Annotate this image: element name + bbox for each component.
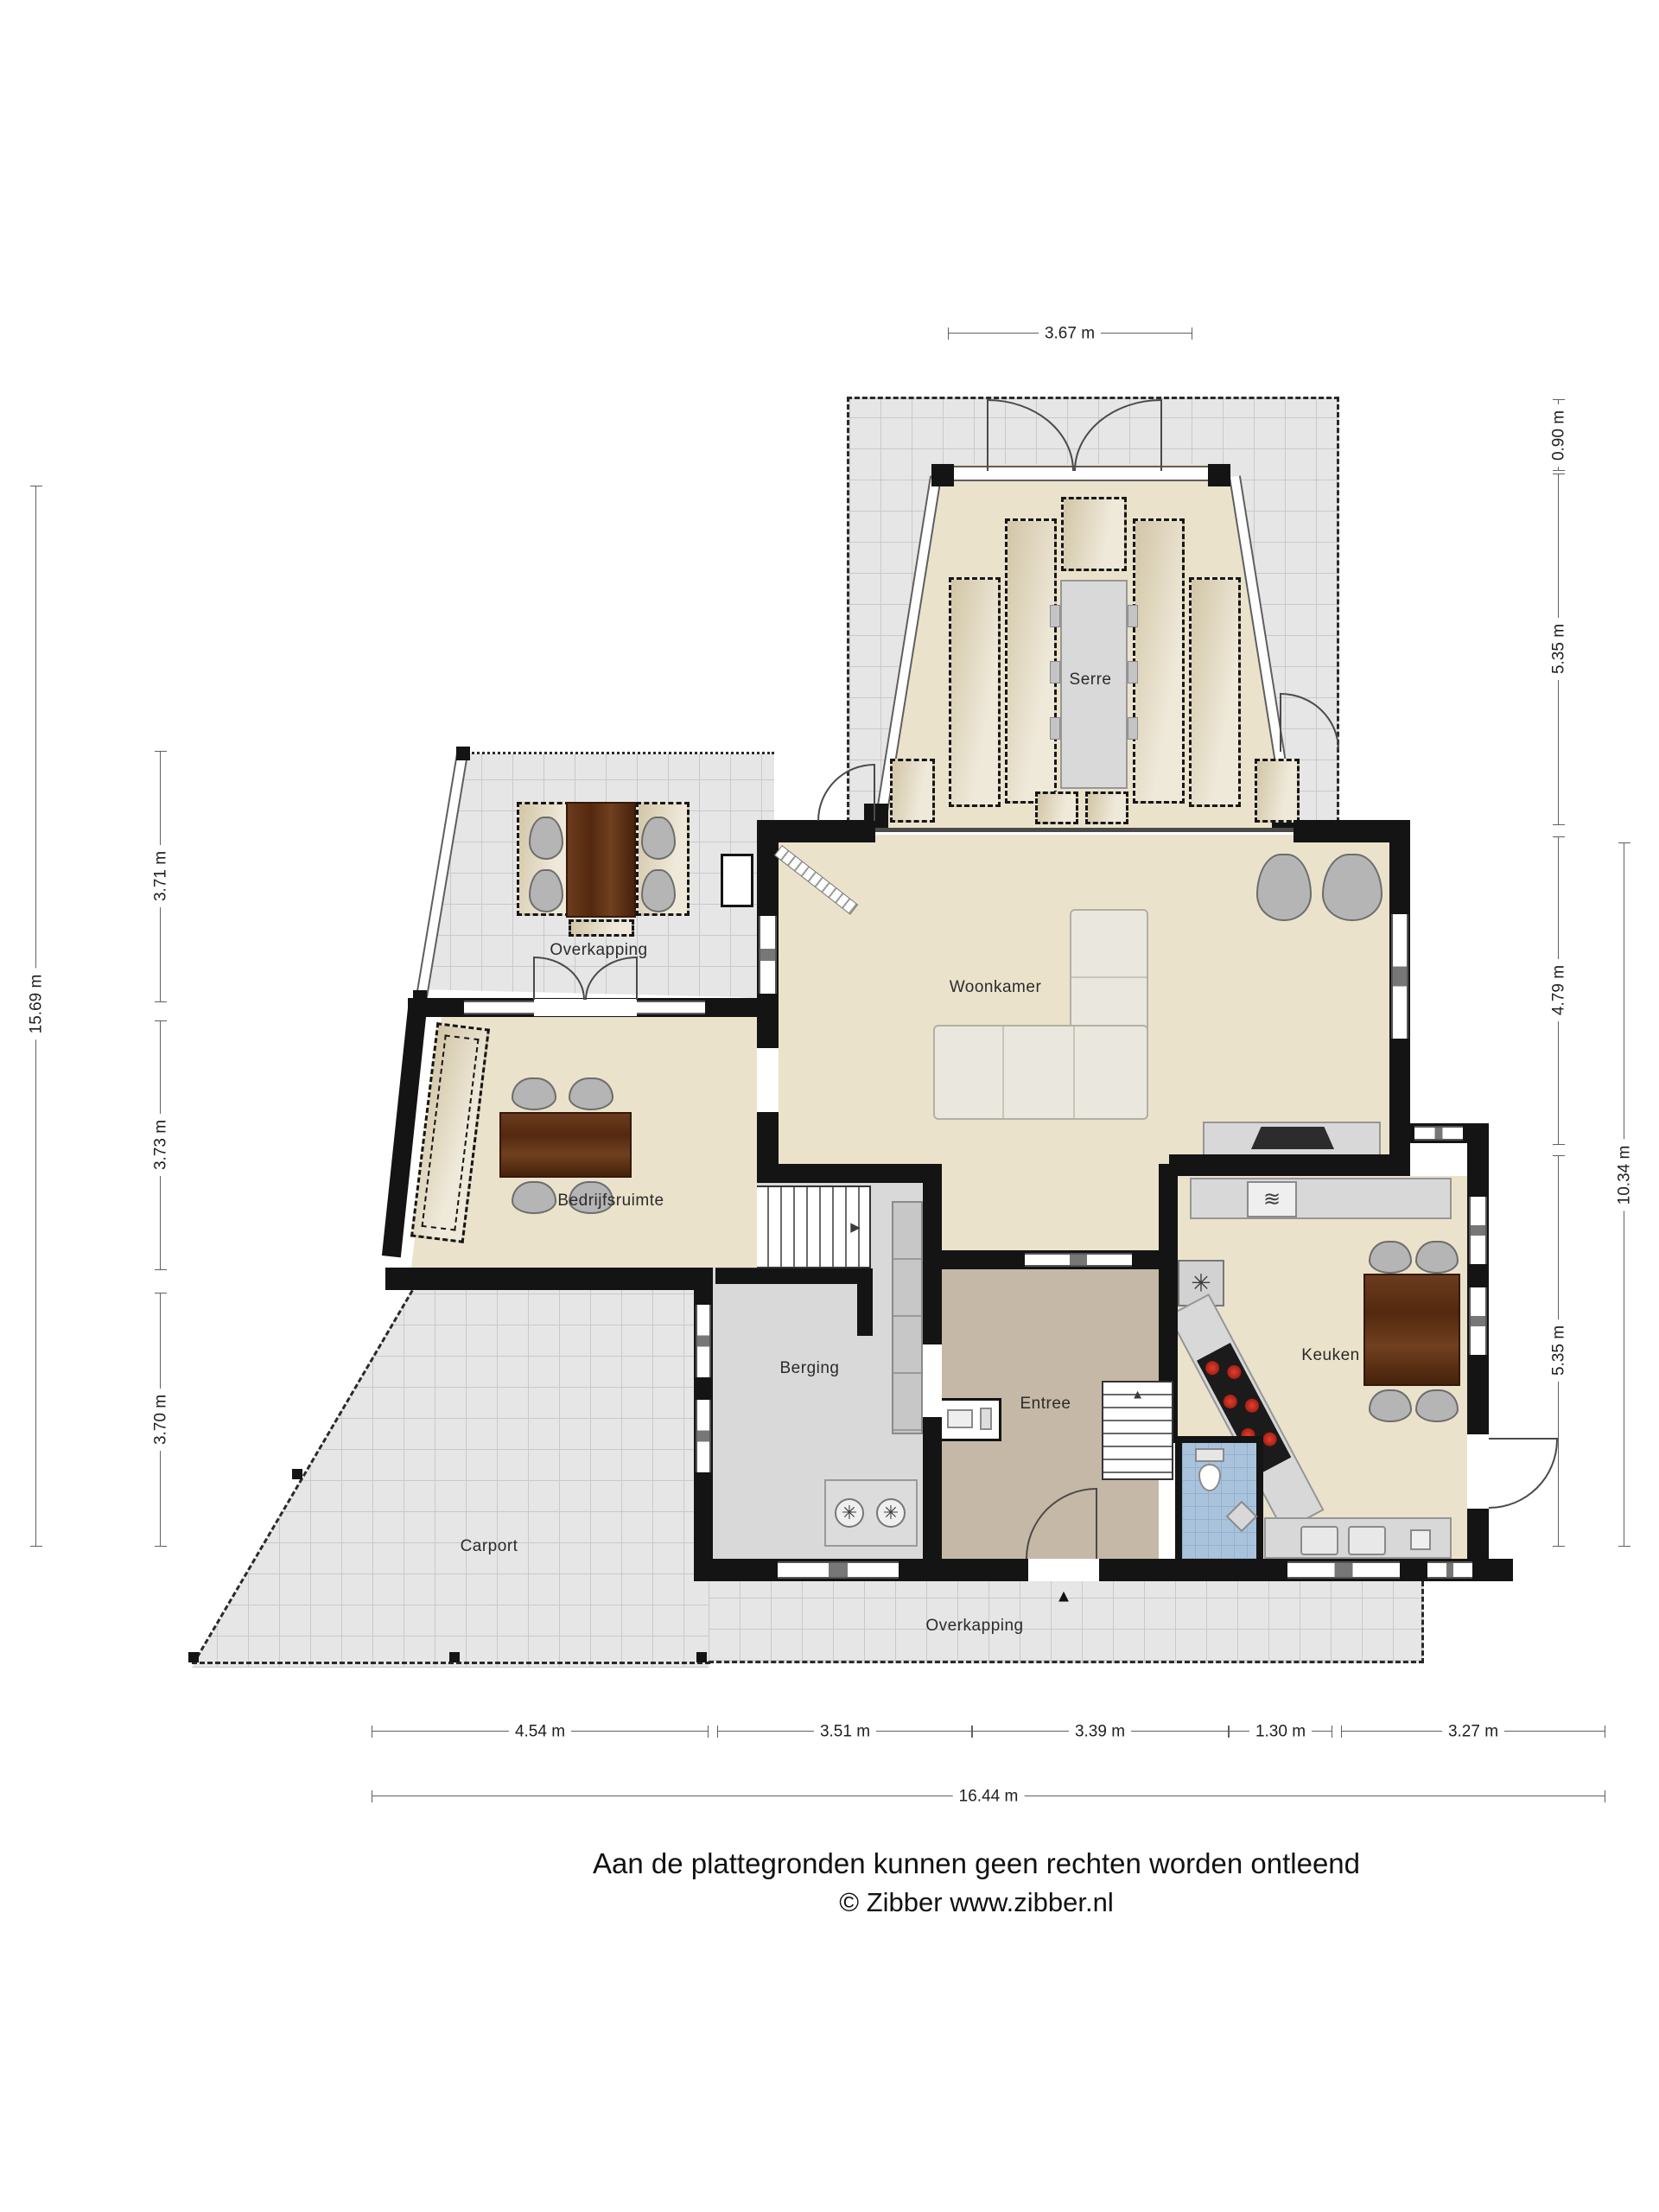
faucet (1410, 1529, 1431, 1550)
window (1469, 1197, 1487, 1264)
serre-chair (1128, 661, 1138, 683)
dimension-label: 10.34 m (1614, 1140, 1636, 1211)
window (1469, 1287, 1487, 1355)
serre-planter (1255, 759, 1300, 823)
chair (512, 1181, 556, 1214)
dimension-label: 3.27 m (1442, 1721, 1504, 1743)
washer: ✳ (835, 1498, 864, 1528)
dimension-line-right-1: 0.90 m (1558, 399, 1559, 471)
stairs-up-arrow-icon: ▲ (1131, 1388, 1144, 1402)
serre-corner-post (931, 464, 954, 486)
dimension-label: 3.51 m (814, 1721, 876, 1743)
niche-fixture (980, 1408, 992, 1430)
sofa-horizontal (933, 1025, 1148, 1120)
dimension-line-left-2: 3.73 m (160, 1020, 161, 1270)
keuken-door-gap (1467, 1434, 1489, 1509)
serre-chair (1050, 661, 1060, 683)
room-label-woonkamer: Woonkamer (950, 978, 1042, 997)
dimension-label: 5.35 m (1548, 1319, 1570, 1382)
entrance-marker-icon: ▲ (1055, 1587, 1072, 1607)
floor-plan: ≋ ✳ ▲ (0, 0, 1659, 2212)
chair (1369, 1389, 1412, 1422)
dimension-line-right-2: 5.35 m (1558, 474, 1559, 825)
keuken-door-swing (1489, 1440, 1558, 1509)
wall-stub (857, 1284, 873, 1336)
wall (1169, 1154, 1410, 1176)
berging-cabinet (892, 1201, 923, 1434)
dimension-label: 15.69 m (26, 969, 48, 1040)
dimension-line-bottom-1: 4.54 m (372, 1731, 709, 1732)
chair (1369, 1241, 1412, 1274)
serre-planter (1005, 518, 1057, 804)
oven: ≋ (1247, 1181, 1297, 1217)
interior-window (1025, 1253, 1132, 1267)
dimension-line-left-outer: 15.69 m (35, 486, 36, 1547)
stairs-right-arrow-icon: ▶ (850, 1219, 861, 1235)
overkapping-planter (569, 919, 634, 937)
serre-planter (1189, 577, 1241, 807)
room-label-entree: Entree (1020, 1395, 1071, 1414)
chimney-niche (721, 854, 753, 907)
chair (641, 869, 676, 912)
carport-post (449, 1652, 460, 1662)
armchair (1256, 854, 1312, 921)
dimension-label: 3.67 m (1039, 323, 1101, 345)
overkapping-table (566, 802, 636, 918)
window (1414, 1126, 1463, 1141)
dimension-line-right-3: 4.79 m (1558, 836, 1559, 1145)
dimension-label: 3.73 m (150, 1114, 172, 1176)
dimension-line-bottom-4: 1.30 m (1229, 1731, 1332, 1732)
sofa-seam (1002, 1027, 1004, 1118)
room-label-overkapping-onder: Overkapping (925, 1617, 1023, 1636)
serre-chair (1128, 605, 1138, 627)
dimension-line-top: 3.67 m (948, 333, 1192, 334)
wc-wall (1175, 1436, 1263, 1443)
bedrijf-door-gap2 (757, 1048, 779, 1112)
dimension-label: 4.79 m (1548, 959, 1570, 1021)
chair (529, 869, 563, 912)
berging-door-gap (923, 1344, 942, 1417)
burner (1221, 1392, 1240, 1411)
window (1427, 1561, 1472, 1579)
chair (569, 1077, 613, 1110)
room-label-bedrijfsruimte: Bedrijfsruimte (557, 1192, 664, 1211)
entree-stairs: ▲ (1102, 1381, 1173, 1480)
dimension-line-bottom-5: 3.27 m (1341, 1731, 1605, 1732)
oven-icon: ≋ (1263, 1187, 1281, 1212)
overkapping-post (456, 747, 470, 760)
serre-planter (1085, 791, 1128, 824)
room-label-serre: Serre (1070, 671, 1112, 690)
front-door-gap (1028, 1559, 1099, 1581)
dimension-line-bottom-total: 16.44 m (372, 1796, 1605, 1796)
serre-planter (1035, 791, 1078, 824)
chair (1415, 1389, 1459, 1422)
serre-chair (1050, 717, 1060, 740)
sink (1348, 1526, 1386, 1555)
dimension-label: 4.54 m (509, 1721, 571, 1743)
footer-disclaimer: Aan de plattegronden kunnen geen rechten… (147, 1847, 1659, 1880)
armchair (1322, 854, 1382, 921)
serre-planter (949, 577, 1001, 807)
serre-corner-post (1208, 464, 1230, 486)
dimension-label: 3.39 m (1069, 1721, 1131, 1743)
dimension-line-right-4: 5.35 m (1558, 1155, 1559, 1547)
sofa-seam (1073, 1027, 1075, 1118)
dimension-line-left-3: 3.70 m (160, 1293, 161, 1547)
room-label-keuken: Keuken (1301, 1346, 1359, 1365)
wall-under-stairs (715, 1268, 873, 1284)
chair (529, 817, 563, 860)
footer-copyright: © Zibber www.zibber.nl (147, 1887, 1659, 1918)
dimension-label: 5.35 m (1548, 618, 1570, 680)
burner (1203, 1358, 1222, 1377)
burner (1224, 1363, 1243, 1382)
washer-icon: ✳ (883, 1502, 899, 1524)
room-label-overkapping-boven: Overkapping (550, 941, 647, 960)
room-label-carport: Carport (461, 1537, 518, 1556)
window (696, 1400, 711, 1472)
bedrijf-table (499, 1112, 632, 1178)
dimension-line-left-1: 3.71 m (160, 751, 161, 1002)
washer: ✳ (876, 1498, 906, 1528)
window (778, 1561, 899, 1579)
serre-chair (1128, 717, 1138, 740)
carport-post (188, 1652, 199, 1662)
wc-wall (1175, 1436, 1182, 1559)
toilet-tank (1195, 1448, 1224, 1462)
kitchen-table (1363, 1274, 1460, 1386)
burner (1261, 1430, 1280, 1449)
window (759, 916, 777, 994)
carport-area (186, 1290, 709, 1668)
dimension-label: 3.70 m (150, 1389, 172, 1451)
kitchen-counter-top (1190, 1178, 1452, 1219)
chair (1415, 1241, 1459, 1274)
bedrijfsruimte-door-gap (534, 999, 637, 1016)
dimension-label: 1.30 m (1249, 1721, 1312, 1743)
serre-planter (1133, 518, 1185, 804)
chair (512, 1077, 556, 1110)
serre-planter (890, 759, 935, 823)
dimension-line-bottom-3: 3.39 m (972, 1731, 1229, 1732)
wc-wall (1256, 1436, 1263, 1559)
window (1391, 914, 1408, 1039)
burner (1243, 1396, 1262, 1415)
window (1287, 1561, 1400, 1579)
tv (1251, 1127, 1334, 1149)
serre-sill (875, 828, 1294, 832)
side-door-swing (817, 764, 874, 821)
niche-sink (947, 1409, 973, 1428)
wall (385, 1268, 694, 1290)
dimension-line-bottom-2: 3.51 m (717, 1731, 972, 1732)
carport-post (696, 1652, 707, 1662)
serre-planter (1061, 497, 1127, 571)
sink (1300, 1526, 1338, 1555)
dimension-line-right-outer: 10.34 m (1624, 842, 1624, 1547)
carport-post (292, 1469, 302, 1479)
dimension-label: 16.44 m (953, 1786, 1025, 1808)
serre-chair (1050, 605, 1060, 627)
entree-niche (939, 1398, 1001, 1441)
dimension-label: 0.90 m (1548, 404, 1570, 467)
overkapping-top-dotted-edge (462, 752, 774, 754)
washer-icon: ✳ (842, 1502, 857, 1524)
chair (641, 817, 676, 860)
window (696, 1305, 711, 1377)
room-label-berging: Berging (780, 1359, 840, 1378)
sofa-seam (1071, 976, 1147, 978)
dimension-label: 3.71 m (150, 845, 172, 907)
washer-unit: ✳ ✳ (824, 1479, 918, 1547)
